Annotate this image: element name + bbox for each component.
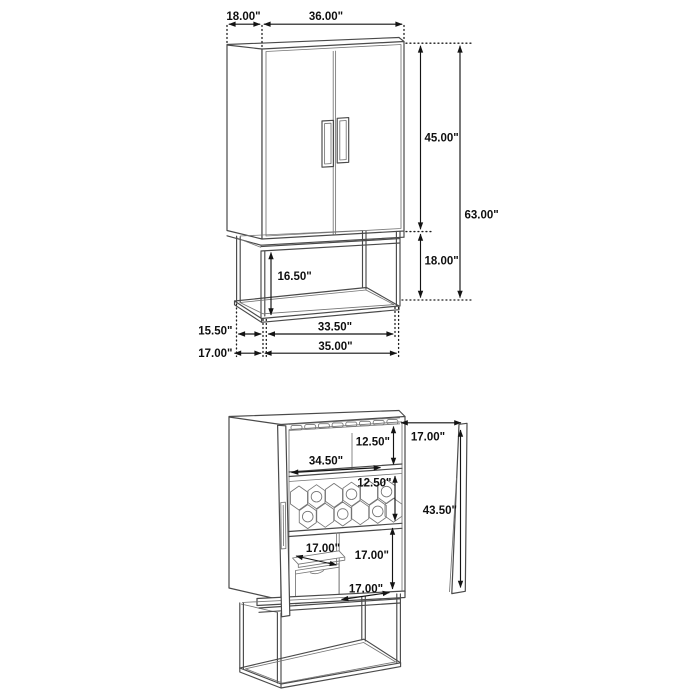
- dim-label-door-section-height: 45.00": [425, 133, 459, 145]
- dim-door-panel-width: 17.00": [401, 423, 461, 444]
- open-cabinet-top-corner: [399, 411, 405, 417]
- dim-label-door-panel-width: 17.00": [411, 432, 445, 444]
- base-bottom-frame-outer: [235, 288, 400, 319]
- dim-label-interior-width: 34.50": [309, 456, 343, 468]
- base-bottom-frame-outer: [240, 639, 401, 684]
- dimension-diagram: 18.00" 36.00" 45.00" 18.00" 63.00" 16.50…: [0, 0, 700, 700]
- base-bottom-frame-inner: [240, 290, 394, 314]
- dim-base-section-height: 18.00": [421, 234, 459, 298]
- open-view-drawing: 17.00" 12.50" 34.50" 12.50" 43.50" 17.00…: [229, 411, 467, 689]
- closed-cabinet-body: [227, 38, 404, 246]
- dim-label-shelf-to-rack: 12.50": [357, 478, 391, 490]
- dim-label-bottom-opening-width: 17.00": [349, 584, 383, 596]
- dim-top-depth: 18.00": [226, 11, 262, 48]
- dim-label-door-panel-height: 43.50": [423, 505, 457, 517]
- dim-label-base-inner-width: 33.50": [318, 322, 352, 334]
- open-cabinet-top-back-edge: [229, 411, 399, 417]
- dim-base-depths: 15.50" 17.00": [198, 304, 266, 360]
- dim-base-widths: 33.50" 35.00": [265, 308, 399, 357]
- cabinet-top-right-corner: [399, 38, 404, 42]
- open-cabinet-base-stand: [240, 594, 401, 688]
- cabinet-dimension-svg: 18.00" 36.00" 45.00" 18.00" 63.00" 16.50…: [0, 0, 700, 700]
- dim-base-opening-height: 16.50": [271, 253, 312, 316]
- dim-label-rack-to-shelf: 12.50": [356, 437, 390, 449]
- dim-label-tray-width: 17.00": [306, 543, 340, 555]
- dim-label-base-outer-depth: 17.00": [198, 348, 232, 360]
- cabinet-left-side-panel: [227, 45, 262, 239]
- dim-label-base-inner-depth: 15.50": [198, 326, 232, 338]
- dim-label-overall-height: 63.00": [465, 210, 499, 222]
- dim-label-lower-opening-height: 17.00": [355, 550, 389, 562]
- dim-label-top-depth: 18.00": [226, 11, 260, 23]
- dim-top-width: 36.00": [264, 11, 404, 40]
- dim-label-base-section-height: 18.00": [425, 256, 459, 268]
- open-cabinet-left-side-panel: [229, 417, 281, 600]
- dim-label-base-outer-width: 35.00": [318, 341, 352, 353]
- dim-label-base-opening-height: 16.50": [278, 271, 312, 283]
- closed-view-drawing: 18.00" 36.00" 45.00" 18.00" 63.00" 16.50…: [198, 11, 498, 360]
- dim-label-top-width: 36.00": [309, 11, 343, 23]
- dim-door-section-height: 45.00": [406, 43, 471, 231]
